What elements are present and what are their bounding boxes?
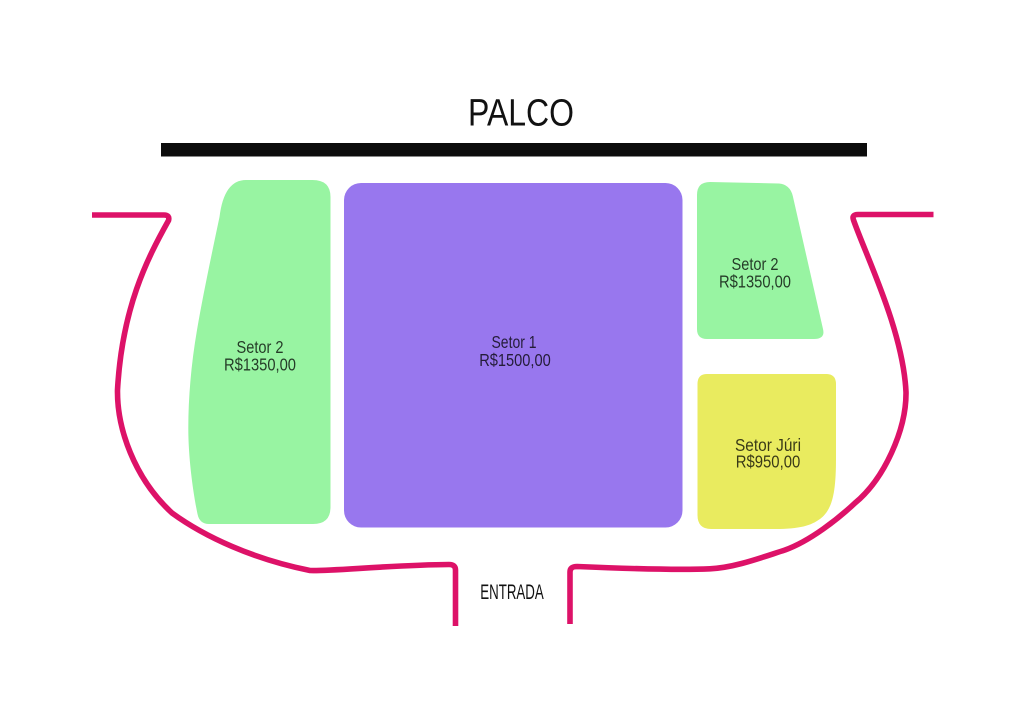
svg-text:R$1350,00: R$1350,00 <box>224 355 296 375</box>
svg-text:R$1350,00: R$1350,00 <box>719 272 791 292</box>
svg-text:Setor 1: Setor 1 <box>492 332 537 352</box>
svg-text:PALCO: PALCO <box>468 93 574 135</box>
svg-text:R$1500,00: R$1500,00 <box>479 350 551 370</box>
svg-text:R$950,00: R$950,00 <box>736 452 801 472</box>
svg-text:ENTRADA: ENTRADA <box>480 580 544 604</box>
